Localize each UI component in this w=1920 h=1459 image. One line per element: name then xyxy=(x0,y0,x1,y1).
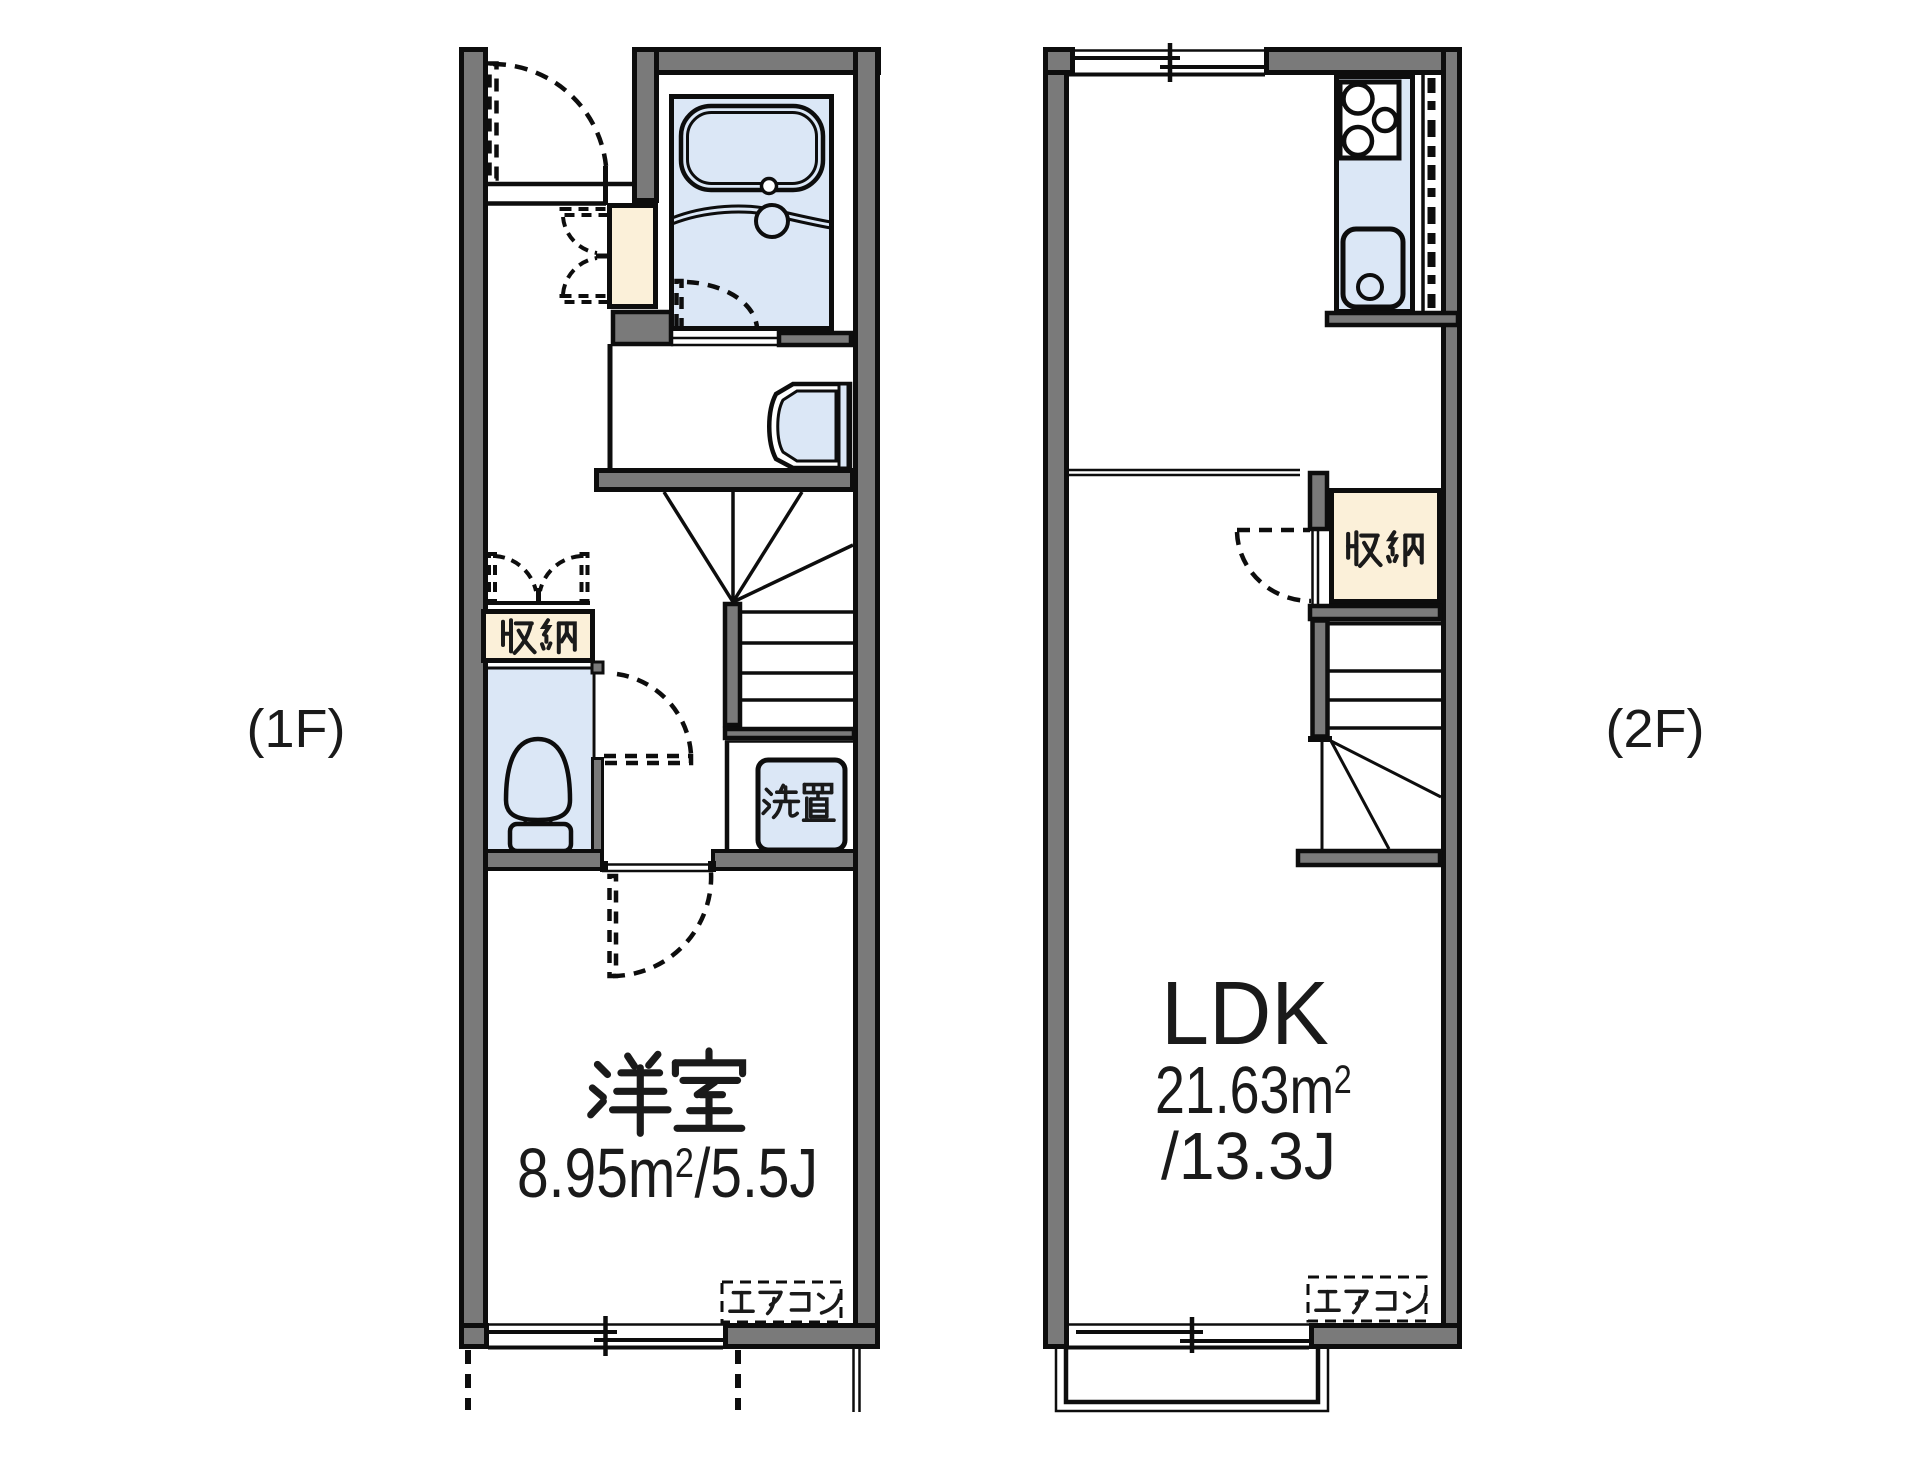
svg-text:2: 2 xyxy=(675,1140,694,1187)
svg-text:8.95m: 8.95m xyxy=(517,1133,675,1212)
svg-text:/5.5J: /5.5J xyxy=(694,1133,818,1212)
svg-text:/13.3J: /13.3J xyxy=(1161,1119,1336,1194)
svg-text:(1F): (1F) xyxy=(247,699,346,759)
svg-text:2: 2 xyxy=(1334,1057,1352,1102)
svg-text:21.63m: 21.63m xyxy=(1155,1052,1334,1127)
svg-text:(2F): (2F) xyxy=(1606,699,1705,759)
svg-text:LDK: LDK xyxy=(1161,962,1329,1063)
